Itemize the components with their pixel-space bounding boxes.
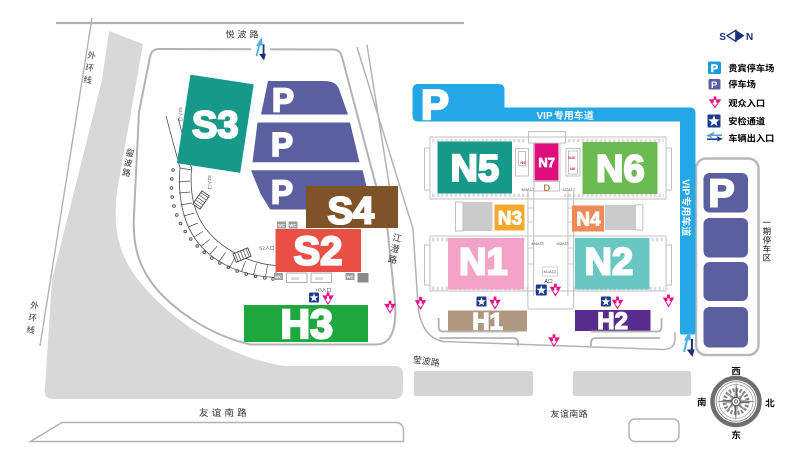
- svg-text:P: P: [421, 81, 449, 128]
- svg-text:0000: 0000: [315, 277, 323, 281]
- svg-text:N7: N7: [538, 155, 555, 170]
- svg-text:WC: WC: [275, 274, 282, 279]
- svg-text:P: P: [711, 80, 718, 91]
- svg-text:P: P: [271, 126, 293, 163]
- svg-text:M1A: M1A: [544, 269, 553, 274]
- svg-text:P: P: [271, 174, 293, 211]
- svg-text:N2: N2: [585, 242, 634, 284]
- svg-text:VIP: VIP: [537, 111, 553, 122]
- svg-text:M4A: M4A: [532, 241, 541, 246]
- svg-text:N5: N5: [451, 148, 500, 190]
- svg-text:VIP: VIP: [680, 179, 691, 195]
- svg-text:S: S: [719, 32, 726, 43]
- svg-text:WC: WC: [346, 274, 353, 279]
- svg-text:H3: H3: [281, 301, 333, 347]
- svg-text:D: D: [543, 183, 550, 194]
- svg-text:N1: N1: [459, 242, 508, 284]
- svg-text:N3: N3: [498, 208, 522, 229]
- svg-text:N9: N9: [520, 160, 526, 165]
- svg-text:P: P: [272, 82, 294, 119]
- svg-text:N10: N10: [568, 155, 576, 160]
- svg-text:S3: S3: [192, 105, 238, 147]
- svg-text:M4A: M4A: [522, 187, 531, 192]
- svg-text:S3: S3: [207, 175, 212, 181]
- svg-text:P: P: [709, 173, 735, 216]
- svg-text:WC: WC: [278, 223, 285, 228]
- svg-text:N8: N8: [570, 166, 576, 171]
- svg-text:N4: N4: [576, 209, 601, 230]
- svg-text:S3: S3: [178, 107, 183, 113]
- svg-text:N: N: [746, 32, 753, 43]
- svg-text:S2: S2: [259, 246, 265, 252]
- svg-text:P: P: [711, 63, 718, 75]
- svg-text:S4: S4: [328, 191, 374, 233]
- svg-text:0000: 0000: [291, 277, 299, 281]
- svg-text:M2A: M2A: [563, 187, 572, 192]
- svg-text:S2: S2: [294, 230, 343, 274]
- svg-text:WC: WC: [289, 223, 296, 228]
- svg-text:M2A: M2A: [557, 241, 566, 246]
- svg-text:N6: N6: [596, 149, 645, 191]
